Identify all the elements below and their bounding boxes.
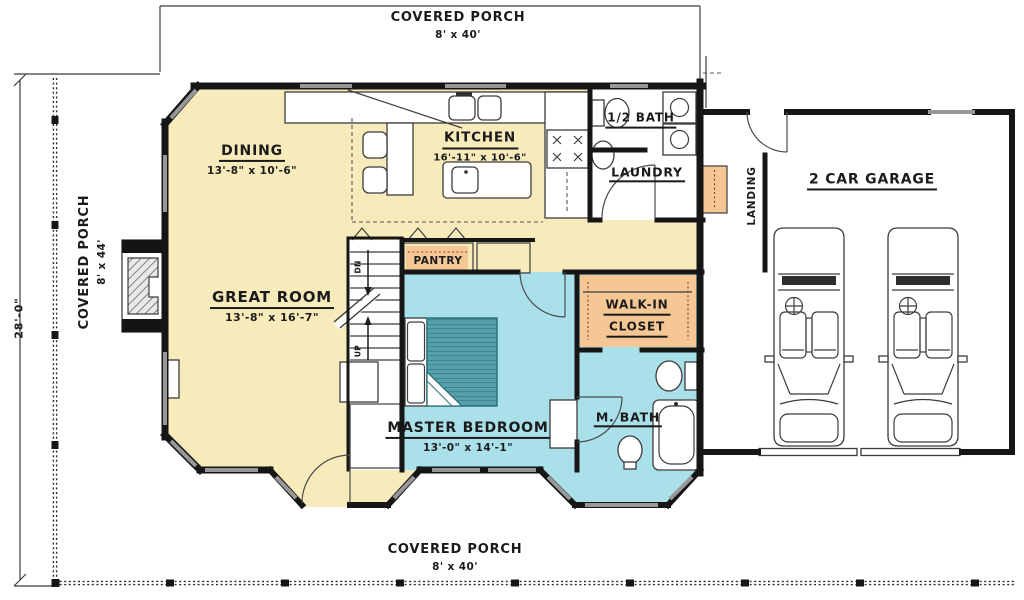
left-dimension-label: 28'-0" [14, 297, 27, 338]
laundry-label: LAUNDRY [609, 165, 685, 182]
half-bath-label: 1/2 BATH [605, 112, 676, 129]
kitchen-size: 16'-11" x 10'-6" [433, 152, 526, 164]
floor-plan-drawing [0, 0, 1024, 600]
wic-line2: CLOSET [607, 321, 667, 338]
top-porch-name: COVERED PORCH [391, 11, 526, 26]
left-porch-label: COVERED PORCH 8' x 44' [78, 195, 108, 330]
walk-in-closet-label: WALK-IN CLOSET [604, 299, 671, 338]
great-room-name: GREAT ROOM [210, 289, 334, 309]
dining-size: 13'-8" x 10'-6" [207, 165, 297, 177]
bottom-porch-label: COVERED PORCH 8' x 40' [388, 543, 523, 573]
great-room-label: GREAT ROOM 13'-8" x 16'-7" [210, 289, 334, 325]
dining-label: DINING 13'-8" x 10'-6" [207, 143, 297, 177]
master-bedroom-name: MASTER BEDROOM [385, 420, 550, 439]
pantry-label: PANTRY [414, 255, 463, 267]
stairs-up-label: UP [355, 345, 364, 357]
great-room-size: 13'-8" x 16'-7" [210, 312, 334, 325]
stairs-dn-label: DN [355, 260, 364, 273]
garage-contents [759, 228, 967, 456]
left-porch-size: 8' x 44' [96, 195, 108, 330]
top-porch-size: 8' x 40' [391, 29, 526, 41]
kitchen-label: KITCHEN 16'-11" x 10'-6" [433, 130, 526, 163]
kitchen-name: KITCHEN [442, 130, 518, 149]
master-bedroom-size: 13'-0" x 14'-1" [385, 442, 550, 454]
bottom-porch-size: 8' x 40' [388, 561, 523, 573]
master-bath-label: M. BATH [594, 410, 662, 427]
floor-plan-page: COVERED PORCH 8' x 40' COVERED PORCH 8' … [0, 0, 1024, 600]
master-bedroom-label: MASTER BEDROOM 13'-0" x 14'-1" [385, 420, 550, 454]
wic-line1: WALK-IN [604, 299, 671, 316]
garage-label: 2 CAR GARAGE [807, 171, 937, 190]
landing-label: LANDING [746, 166, 758, 225]
left-porch-name: COVERED PORCH [78, 195, 93, 330]
bottom-porch-name: COVERED PORCH [388, 543, 523, 558]
dining-name: DINING [219, 143, 285, 162]
top-porch-label: COVERED PORCH 8' x 40' [391, 11, 526, 41]
